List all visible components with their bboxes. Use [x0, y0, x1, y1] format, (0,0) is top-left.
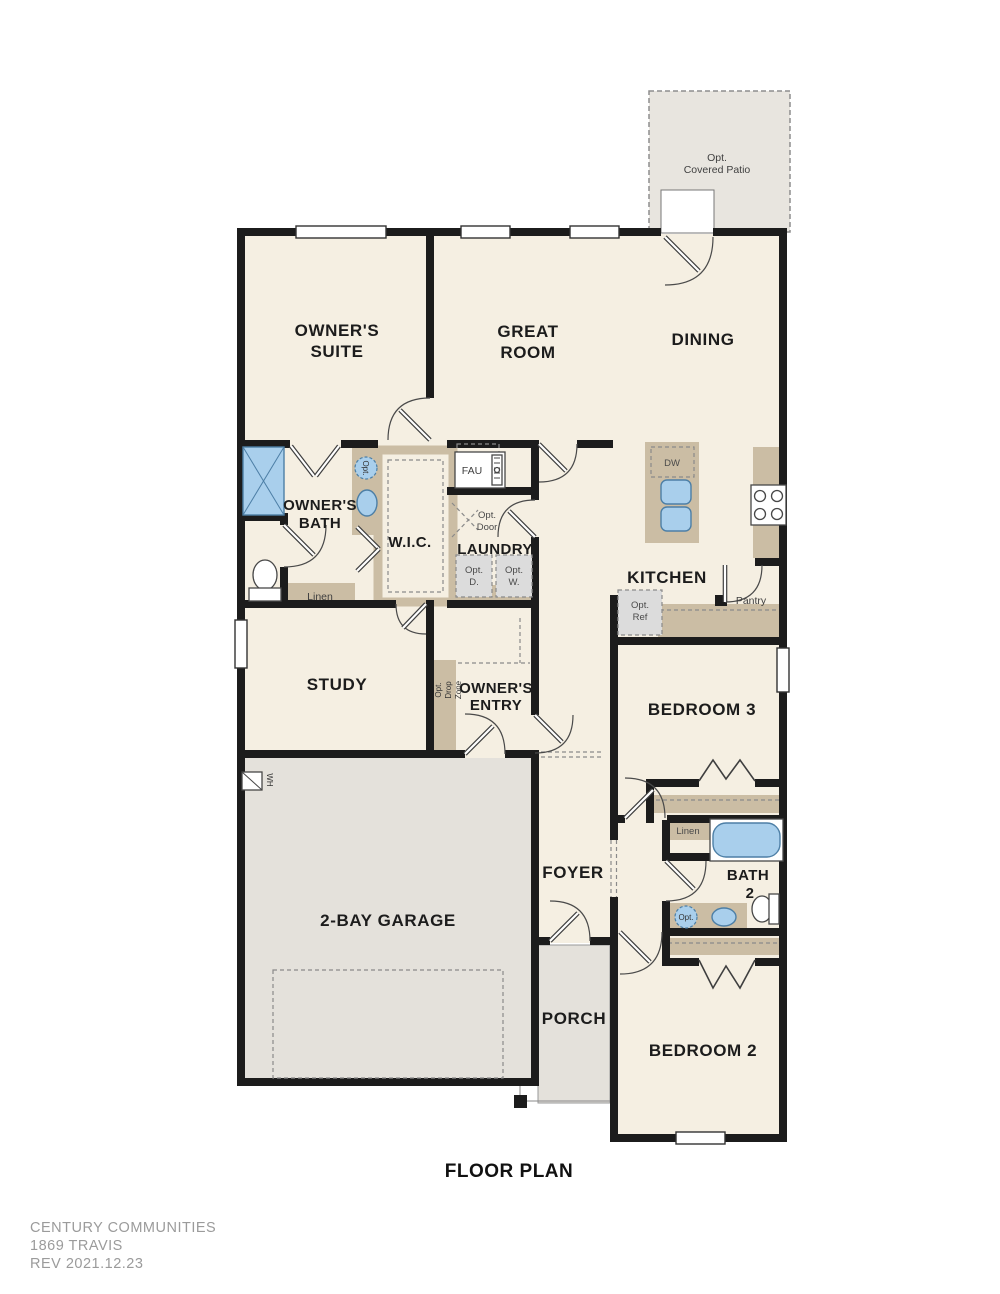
fau-label: FAU: [462, 465, 482, 477]
bath2-sink: [712, 908, 736, 926]
opt-door-label: Opt.: [478, 510, 496, 521]
footer-company: CENTURY COMMUNITIES: [30, 1220, 216, 1236]
bath2-toilet: [752, 894, 779, 924]
owners-bath-label: OWNER'S: [283, 497, 357, 514]
water-heater: [242, 772, 262, 790]
bathtub: [710, 819, 783, 861]
owners-suite-label: OWNER'S: [295, 321, 380, 340]
opt-sink-label: Opt.: [678, 913, 693, 922]
bedroom2-closet-shelf: [666, 938, 786, 955]
page-title: FLOOR PLAN: [445, 1161, 574, 1182]
owners-entry-label: OWNER'S: [459, 680, 533, 697]
opt-dryer-label-2: D.: [469, 577, 479, 588]
wic-label: W.I.C.: [388, 534, 431, 551]
great-room-label: GREAT: [497, 322, 558, 341]
study-window: [235, 620, 247, 668]
dining-label: DINING: [671, 330, 734, 349]
foyer-label: FOYER: [542, 863, 604, 882]
bath2-label-2: 2: [746, 885, 755, 902]
range: [751, 485, 786, 525]
laundry-label: LAUNDRY: [457, 541, 533, 558]
study-label: STUDY: [307, 675, 368, 694]
opt-drop-zone-label-2: Drop: [444, 681, 453, 699]
pantry-label: Pantry: [736, 595, 767, 607]
opt-drop-zone-label-3: Zone: [454, 680, 463, 699]
opt-toilet-label: Opt.: [361, 460, 370, 475]
footer-model: 1869 TRAVIS: [30, 1238, 123, 1254]
owners-bath-sink: [357, 490, 377, 516]
porch-label: PORCH: [542, 1009, 606, 1028]
patio-label-2: Covered Patio: [684, 164, 751, 176]
footer-revision: REV 2021.12.23: [30, 1256, 143, 1272]
opt-washer-box: [496, 555, 532, 597]
owners-suite-label-2: SUITE: [310, 342, 363, 361]
bath2-label: BATH: [727, 867, 769, 884]
shower: [243, 447, 284, 515]
footer: CENTURY COMMUNITIES 1869 TRAVIS REV 2021…: [30, 1220, 216, 1272]
bath2-linen-label: Linen: [676, 826, 699, 837]
owners-suite-window: [296, 226, 386, 238]
bedroom3-closet-shelf: [654, 795, 786, 813]
floor-plan-page: OWNER'S SUITE GREAT ROOM DINING OWNER'S …: [0, 0, 1000, 1294]
opt-drop-zone-label: Opt.: [434, 682, 443, 697]
opt-dryer-label: Opt.: [465, 565, 483, 576]
owners-bath-label-2: BATH: [299, 515, 341, 532]
kitchen-counter-bottom: [658, 604, 787, 638]
kitchen-label: KITCHEN: [627, 568, 707, 587]
opt-ref-label: Opt.: [631, 600, 649, 611]
opt-washer-label: Opt.: [505, 565, 523, 576]
great-room-label-2: ROOM: [500, 343, 555, 362]
garage-label: 2-BAY GARAGE: [320, 911, 456, 930]
patio-door-landing: [661, 190, 714, 233]
floor-plan-drawing: OWNER'S SUITE GREAT ROOM DINING OWNER'S …: [0, 0, 1000, 1294]
porch-post: [514, 1095, 527, 1108]
wh-label: WH: [265, 773, 274, 787]
owners-entry-label-2: ENTRY: [470, 697, 522, 714]
patio-label: Opt.: [707, 152, 727, 164]
opt-dryer-box: [456, 555, 492, 597]
great-room-window-2: [570, 226, 619, 238]
bedroom3-label: BEDROOM 3: [648, 700, 756, 719]
bedroom2-window: [676, 1132, 725, 1144]
dw-label: DW: [664, 458, 680, 469]
opt-door-label-2: Door: [477, 522, 498, 533]
owners-linen-label: Linen: [307, 591, 333, 603]
bedroom2-label: BEDROOM 2: [649, 1041, 757, 1060]
great-room-window-1: [461, 226, 510, 238]
opt-washer-label-2: W.: [508, 577, 519, 588]
opt-ref-label-2: Ref: [633, 612, 648, 623]
bedroom3-window: [777, 648, 789, 692]
